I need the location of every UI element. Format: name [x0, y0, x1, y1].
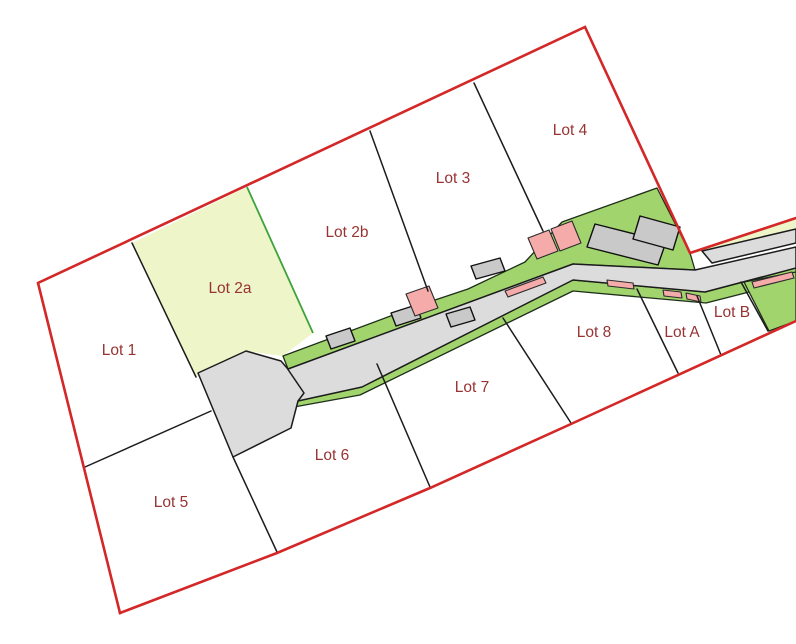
lot-label-2a: Lot 2a [208, 280, 251, 297]
lot-label-1: Lot 1 [102, 342, 136, 359]
site-plan-map: Lot 1 Lot 2a Lot 2b Lot 3 Lot 4 Lot 5 Lo… [0, 0, 796, 644]
lot-label-4: Lot 4 [553, 122, 588, 139]
lot-label-5: Lot 5 [154, 494, 188, 511]
lot-label-7: Lot 7 [455, 379, 489, 396]
lot-label-3: Lot 3 [436, 170, 470, 187]
lot-label-2b: Lot 2b [325, 224, 368, 241]
lot-label-b: Lot B [714, 304, 750, 321]
lot-label-6: Lot 6 [315, 447, 349, 464]
plat-drawing: Lot 1 Lot 2a Lot 2b Lot 3 Lot 4 Lot 5 Lo… [0, 0, 796, 644]
lot-label-a: Lot A [664, 324, 700, 341]
lot-label-8: Lot 8 [577, 324, 611, 341]
